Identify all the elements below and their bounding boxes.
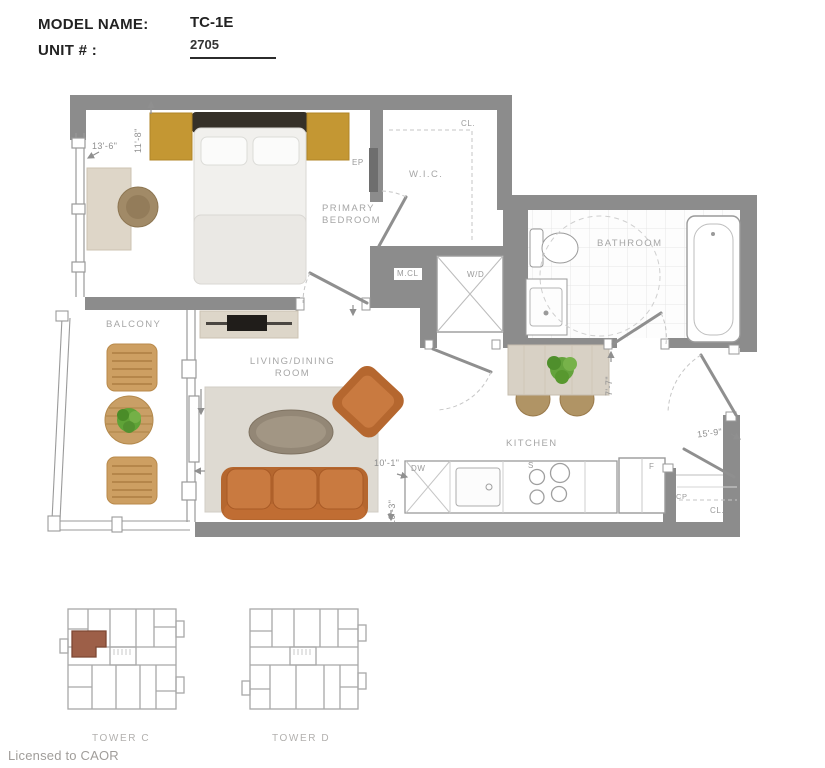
- tower-c-label: TOWER C: [92, 733, 150, 744]
- floor-plan-drawing: [0, 0, 825, 768]
- label-mcl: M.CL: [394, 268, 422, 280]
- balcony-slider-window: [182, 310, 199, 522]
- bedroom-window: [72, 133, 85, 297]
- room-label-balcony: BALCONY: [106, 319, 161, 330]
- closet-rod-wic: [389, 130, 472, 243]
- fridge: [619, 458, 665, 513]
- label-cl-entry: CL.: [710, 506, 724, 515]
- label-dishwasher: DW: [411, 464, 426, 473]
- kitchen-counter: [405, 461, 617, 513]
- keyplan-tower-c: [60, 609, 184, 709]
- label-fridge: F: [649, 462, 655, 471]
- dim-kitchen-depth: 7'-7": [604, 358, 614, 396]
- balcony-table-with-plant: [105, 396, 153, 444]
- label-cp: CP: [676, 492, 688, 501]
- room-label-bathroom: BATHROOM: [597, 238, 662, 249]
- bed: [192, 112, 308, 284]
- label-stove: S: [528, 461, 534, 470]
- balcony-chair: [107, 344, 157, 391]
- label-wd: W/D: [467, 270, 484, 279]
- electrical-panel: [369, 148, 378, 192]
- room-label-living-dining: LIVING/DINING ROOM: [230, 356, 355, 380]
- bathtub: [687, 216, 740, 342]
- balcony-chair: [107, 457, 157, 504]
- nightstand-right: [307, 113, 349, 160]
- floorplan-page: MODEL NAME: UNIT # : TC-1E 2705: [0, 0, 825, 768]
- washer-dryer: [437, 256, 503, 332]
- dim-living-width: 10'-1": [374, 458, 399, 468]
- dim-bedroom-depth: 11'-8": [133, 109, 143, 153]
- sofa: [221, 467, 368, 520]
- dim-bedroom-width: 13'-6": [92, 141, 117, 151]
- room-label-primary-bedroom: PRIMARY BEDROOM: [322, 203, 381, 227]
- tower-d-label: TOWER D: [272, 733, 330, 744]
- label-cl-wic: CL.: [461, 119, 475, 128]
- desk-and-chair: [87, 168, 158, 250]
- dim-living-depth: 10'-3": [387, 481, 397, 525]
- room-label-wic: W.I.C.: [409, 169, 443, 180]
- kitchen-sink: [456, 468, 500, 506]
- room-label-kitchen: KITCHEN: [506, 438, 558, 449]
- keyplan-tower-d: [242, 609, 366, 709]
- tv-console: [200, 311, 298, 338]
- coffee-table-top: [256, 416, 326, 448]
- bathroom-sink: [526, 279, 567, 335]
- nightstand-left: [150, 113, 192, 160]
- license-text: Licensed to CAOR: [8, 748, 119, 763]
- label-ep: EP: [352, 158, 364, 167]
